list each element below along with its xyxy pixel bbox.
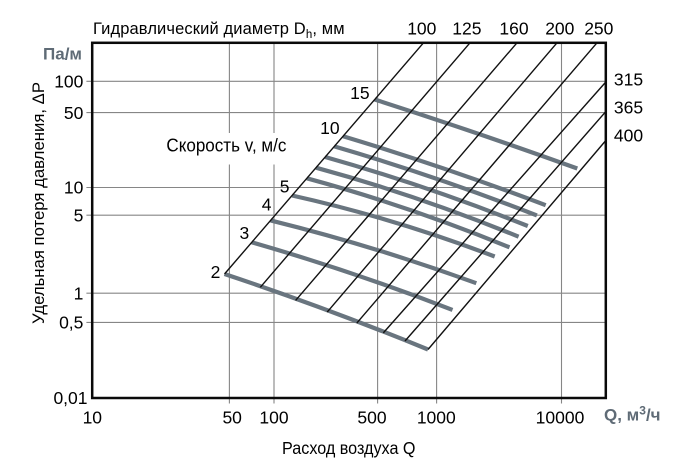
svg-text:1: 1 [74,283,84,303]
svg-text:Па/м: Па/м [43,45,82,63]
svg-text:5: 5 [74,205,84,225]
svg-text:10000: 10000 [536,408,585,428]
svg-text:250: 250 [584,19,613,39]
svg-text:10: 10 [320,118,340,138]
svg-text:0,01: 0,01 [53,388,87,408]
svg-text:100: 100 [54,72,83,92]
svg-text:Расход воздуха Q: Расход воздуха Q [282,438,416,458]
svg-text:15: 15 [350,83,369,103]
svg-text:Удельная потеря давления, ΔP: Удельная потеря давления, ΔP [29,82,48,324]
svg-text:200: 200 [545,19,574,39]
svg-text:125: 125 [452,19,481,39]
svg-text:4: 4 [262,195,272,215]
svg-text:315: 315 [614,70,643,90]
svg-text:5: 5 [280,177,290,197]
svg-text:50: 50 [222,408,242,428]
svg-text:2: 2 [211,262,221,282]
svg-text:100: 100 [407,19,436,39]
svg-text:10: 10 [83,408,103,428]
svg-text:3: 3 [239,223,249,243]
svg-text:365: 365 [614,97,643,117]
svg-text:10: 10 [64,178,84,198]
svg-text:400: 400 [614,126,643,146]
svg-text:500: 500 [357,408,386,428]
svg-text:Скорость v, м/с: Скорость v, м/с [166,136,286,156]
svg-text:1000: 1000 [417,408,456,428]
svg-text:100: 100 [259,408,288,428]
svg-text:160: 160 [499,19,528,39]
svg-text:Q, м3/ч: Q, м3/ч [604,404,661,425]
svg-text:0,5: 0,5 [59,313,83,333]
svg-text:50: 50 [64,103,84,123]
